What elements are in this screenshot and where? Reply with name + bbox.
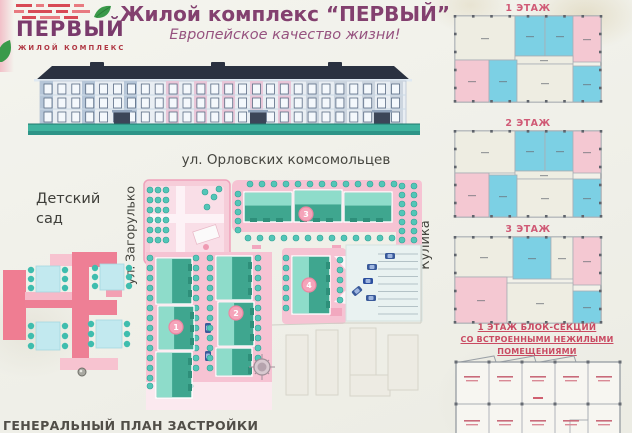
header: Жилой комплекс “ПЕРВЫЙ” Европейское каче… (120, 2, 450, 43)
building-badge-1: 1 (169, 320, 183, 334)
building-badge-4: 4 (302, 278, 316, 292)
bolt-icon (78, 368, 86, 376)
svg-text:2: 2 (233, 309, 239, 318)
future-buildings (286, 328, 418, 396)
building-badge-3: 3 (299, 207, 313, 221)
page-subtitle: Европейское качество жизни! (120, 27, 450, 43)
svg-text:4: 4 (306, 281, 312, 290)
floor-plan-2 (452, 129, 604, 221)
logo-title: ПЕРВЫЙ (16, 17, 125, 41)
leaf-icon (0, 36, 16, 64)
floor-plan-1 (452, 14, 604, 106)
kindergarten-buildings (3, 252, 132, 370)
site-plan-map: 1 2 3 4 (0, 150, 445, 433)
floor-3-heading: 3 ЭТАЖ (452, 224, 604, 235)
page-title: Жилой комплекс “ПЕРВЫЙ” (120, 2, 450, 26)
building-badge-2: 2 (229, 306, 243, 320)
svg-text:3: 3 (303, 210, 309, 219)
block-section-plan (450, 350, 626, 433)
billboard: ПЕРВЫЙ ЖИЛОЙ КОМПЛЕКС Жилой комплекс “ПЕ… (0, 0, 632, 433)
floor-2-heading: 2 ЭТАЖ (452, 118, 604, 129)
block-section-heading-line1: 1 ЭТАЖ БЛОК-СЕКЦИЙ (446, 322, 628, 334)
floor-1-heading: 1 ЭТАЖ (452, 3, 604, 14)
building-elevation-drawing (28, 60, 420, 138)
floor-plan-3 (452, 235, 604, 327)
logo-subtitle: ЖИЛОЙ КОМПЛЕКС (18, 44, 126, 52)
svg-text:1: 1 (173, 323, 179, 332)
